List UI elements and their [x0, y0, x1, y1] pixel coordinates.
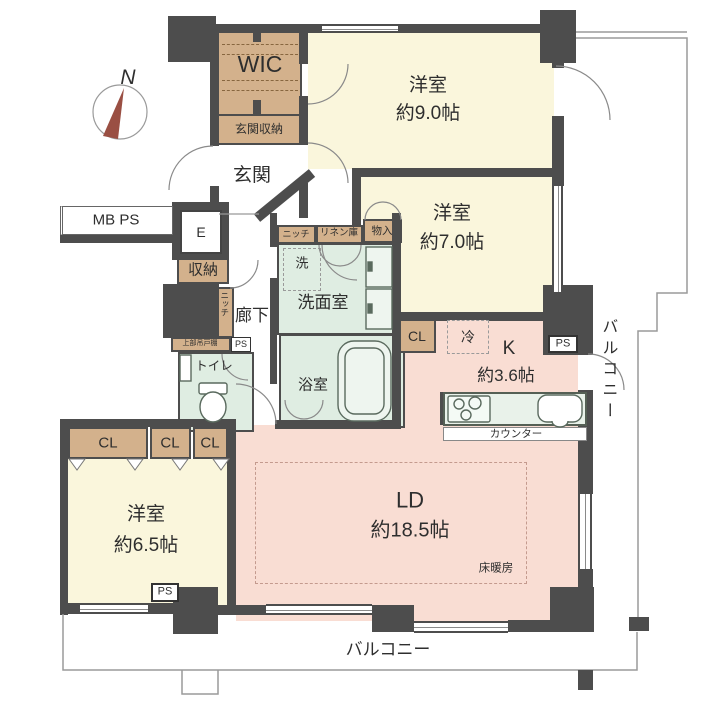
wall-segment: [227, 419, 236, 609]
compass-n-label: N: [120, 66, 135, 90]
hall-storage-label: 収納: [188, 261, 218, 278]
storage-small-label: 物入: [372, 225, 393, 237]
bedroom-7-size: 約7.0帖: [420, 232, 484, 254]
wall-segment: [299, 30, 308, 64]
living-dining-label: LD: [396, 487, 424, 512]
wall-segment: [60, 419, 68, 615]
washer-label: 洗: [295, 257, 308, 272]
bathroom-label: 浴室: [298, 376, 328, 393]
wall-segment: [60, 419, 228, 427]
wall-segment: [168, 16, 216, 62]
living-dining-size: 約18.5帖: [371, 520, 450, 543]
window-marker: [266, 604, 372, 615]
wall-segment: [60, 234, 173, 243]
wall-segment: [508, 620, 552, 632]
pipe-space-label: PS: [158, 586, 173, 599]
wall-segment: [270, 213, 277, 247]
window-marker: [552, 186, 563, 292]
kitchen-label: K: [503, 338, 516, 360]
counter-label: カウンター: [490, 428, 543, 440]
hallway-label: 廊下: [235, 306, 269, 326]
wall-segment: [352, 168, 564, 177]
pipe-space-label: PS: [556, 338, 571, 351]
wall-segment: [392, 213, 401, 424]
kitchen-size: 約3.6帖: [477, 366, 535, 386]
entrance-storage-label: 玄関収納: [235, 123, 283, 137]
wic-divider: [253, 100, 261, 116]
toilet-label: トイレ: [195, 359, 233, 373]
upper-cabinet-label: 上部吊戸棚: [183, 340, 218, 348]
elevator-label: E: [196, 224, 205, 240]
closet-1-label: CL: [98, 434, 117, 451]
wall-segment: [275, 420, 401, 429]
compass-circle: [93, 85, 147, 139]
wall-segment: [352, 168, 361, 226]
closet-kitchen-label: CL: [408, 328, 426, 344]
wall-segment: [210, 24, 219, 146]
bedroom-9-size: 約9.0帖: [396, 103, 460, 125]
refrigerator-label: 冷: [461, 329, 475, 345]
wall-segment: [299, 183, 308, 218]
closet-3-label: CL: [200, 434, 219, 451]
wall-segment: [163, 284, 219, 338]
bedroom-7-label: 洋室: [433, 203, 471, 225]
meter-box-label: MB PS: [93, 211, 140, 228]
bedroom-9-label: 洋室: [409, 75, 447, 97]
wall-segment: [218, 605, 266, 615]
window-marker: [80, 603, 148, 614]
wic-label: WIC: [238, 51, 283, 77]
niche-washroom-label: ニッチ: [282, 229, 309, 239]
entrance-label: 玄関: [233, 165, 271, 187]
compass-needle-icon: [103, 88, 124, 139]
wic-shelf-hatch: [222, 80, 298, 91]
floor-plan: N WIC 玄関収納 玄関 洋室 約9.0帖 洋室 約7.0帖 洋室 約6.5帖…: [0, 0, 724, 724]
wall-segment: [299, 96, 308, 145]
wall-segment: [372, 605, 414, 632]
washroom-label: 洗面室: [298, 293, 349, 313]
pipe-space-label: PS: [235, 339, 247, 349]
wall-segment: [396, 24, 546, 33]
room-bedroom-65: [68, 459, 227, 605]
wic-divider: [253, 28, 261, 42]
wall-segment: [173, 587, 218, 634]
wall-segment: [552, 32, 564, 68]
wall-segment: [552, 116, 564, 186]
window-marker: [322, 24, 398, 33]
balcony-bottom-label: バルコニー: [346, 640, 431, 660]
balcony-right-label: バルコニー: [598, 318, 616, 423]
bedroom-65-label: 洋室: [127, 504, 165, 526]
window-marker: [414, 621, 508, 633]
niche-hall-label: ニッチ: [219, 291, 229, 317]
room-bedroom-9: [308, 32, 554, 169]
wall-segment: [270, 278, 277, 384]
balcony-partition: [578, 670, 593, 690]
bedroom-65-size: 約6.5帖: [114, 535, 178, 557]
floor-heating-label: 床暖房: [479, 562, 514, 575]
linen-label: リネン庫: [320, 229, 358, 240]
wall-segment: [60, 603, 82, 614]
kitchen-counter: [443, 392, 587, 426]
window-marker: [578, 494, 592, 569]
wall-segment: [550, 587, 594, 632]
closet-2-label: CL: [160, 434, 179, 451]
balcony-partition: [629, 617, 649, 631]
